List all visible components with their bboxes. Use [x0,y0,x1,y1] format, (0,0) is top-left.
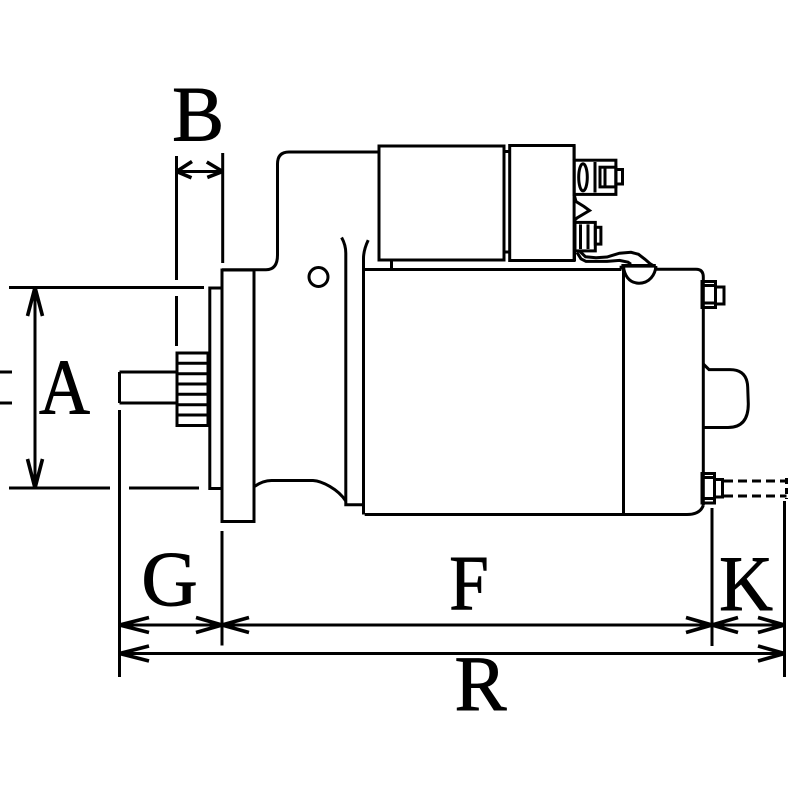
svg-text:F: F [449,540,489,627]
svg-text:K: K [719,540,773,627]
svg-text:A: A [39,344,90,431]
svg-text:B: B [172,71,224,158]
svg-text:R: R [454,640,506,727]
svg-text:G: G [141,535,197,622]
